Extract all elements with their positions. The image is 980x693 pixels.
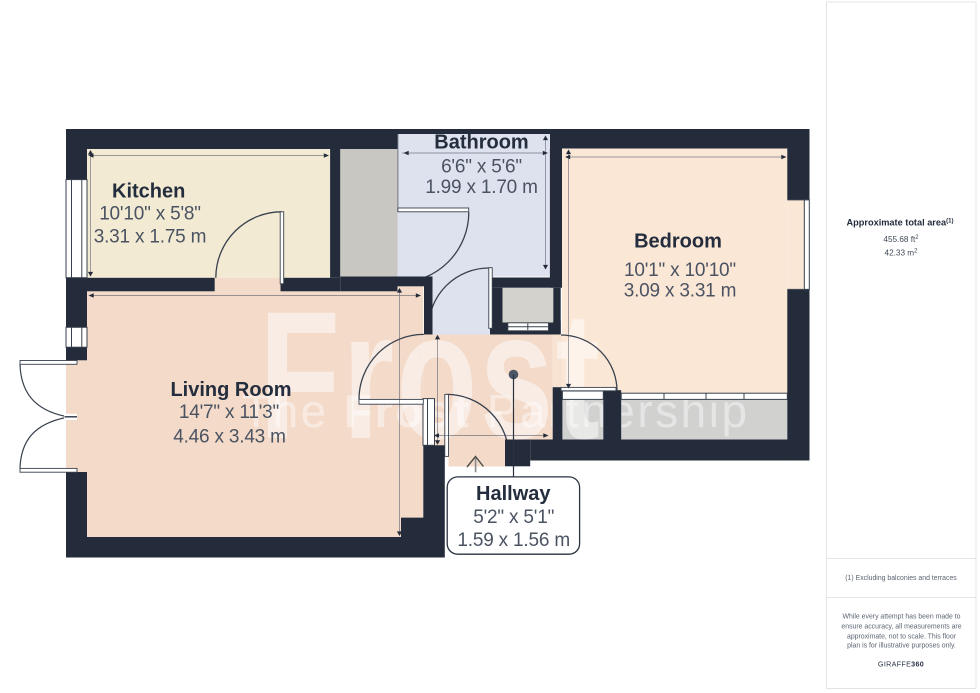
svg-text:455.68 ft2: 455.68 ft2 bbox=[883, 235, 919, 244]
svg-text:Living Room: Living Room bbox=[170, 379, 291, 401]
svg-text:Hallway: Hallway bbox=[476, 483, 551, 505]
svg-text:While every attempt has been m: While every attempt has been made to bbox=[843, 614, 961, 621]
svg-text:6'6" x 5'6": 6'6" x 5'6" bbox=[441, 157, 522, 178]
svg-text:Kitchen: Kitchen bbox=[112, 181, 185, 203]
svg-text:Bedroom: Bedroom bbox=[634, 231, 722, 253]
svg-text:5'2" x 5'1": 5'2" x 5'1" bbox=[473, 507, 554, 528]
svg-text:plan is for illustrative purpo: plan is for illustrative purposes only. bbox=[847, 643, 956, 650]
svg-text:(1) Excluding balconies and te: (1) Excluding balconies and terraces bbox=[845, 575, 957, 582]
svg-text:14'7" x 11'3": 14'7" x 11'3" bbox=[179, 402, 279, 423]
svg-text:3.31 x 1.75 m: 3.31 x 1.75 m bbox=[94, 227, 207, 248]
svg-text:1.59 x 1.56 m: 1.59 x 1.56 m bbox=[457, 530, 570, 551]
svg-text:ensure accuracy, all measureme: ensure accuracy, all measurements are bbox=[841, 624, 961, 631]
svg-text:approximate, not to scale. Thi: approximate, not to scale. This floor bbox=[847, 634, 957, 641]
svg-text:1.99 x 1.70 m: 1.99 x 1.70 m bbox=[425, 177, 538, 198]
svg-text:10'10" x 5'8": 10'10" x 5'8" bbox=[99, 204, 201, 225]
svg-text:GIRAFFE360: GIRAFFE360 bbox=[878, 660, 924, 669]
svg-text:10'1" x 10'10": 10'1" x 10'10" bbox=[624, 260, 736, 281]
svg-text:42.33 m2: 42.33 m2 bbox=[885, 249, 919, 258]
svg-text:4.46 x 3.43 m: 4.46 x 3.43 m bbox=[173, 427, 286, 448]
svg-text:Bathroom: Bathroom bbox=[434, 132, 528, 154]
svg-text:Approximate total area(1): Approximate total area(1) bbox=[847, 218, 954, 228]
svg-text:3.09 x 3.31 m: 3.09 x 3.31 m bbox=[624, 281, 737, 302]
